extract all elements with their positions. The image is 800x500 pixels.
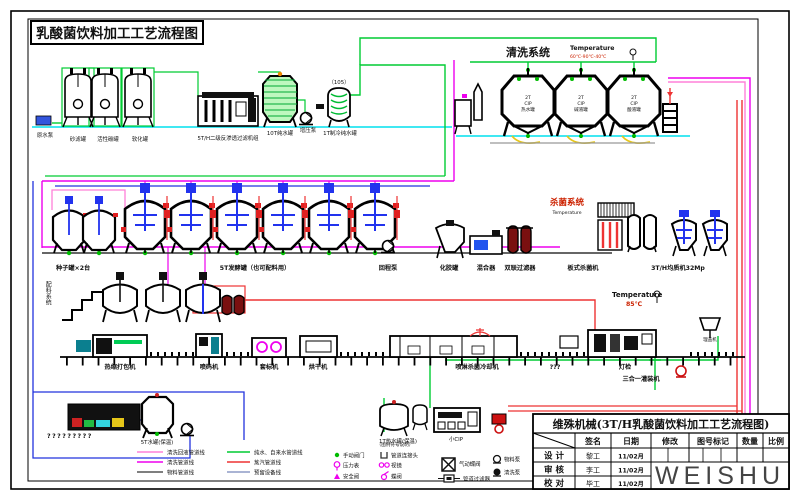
col-sign: 签名 (584, 436, 601, 446)
legend-symbol-0: 手动阀门 (343, 452, 365, 460)
pure-water-tank-10t (263, 72, 297, 127)
small-cip-unit (434, 408, 480, 432)
legend-label-clean-return: 清洗回液管道线 (167, 449, 205, 457)
row-design-date: 11/02月 (618, 453, 644, 461)
manual-valve-icon (335, 453, 339, 457)
sleeve-labeler-machine (252, 338, 286, 357)
titleblock-title: 维殊机械(3T/H乳酸菌饮料加工工艺流程图) (553, 417, 770, 431)
dryer-machine (300, 336, 337, 357)
legend-label-reserved: 预留设备线 (254, 469, 282, 477)
legend-symbol-9: 清洗泵 (504, 469, 521, 477)
svg-text:热水罐: 热水罐 (521, 106, 535, 113)
coder-label: 喷码机 (200, 363, 219, 371)
legend-label-steam: 蒸汽管道线 (254, 459, 282, 467)
title-box: 乳酸菌饮料加工工艺流程图 (31, 21, 203, 44)
row-proof-name: 毕工 (586, 479, 600, 488)
process-flow-drawing: 乳酸菌饮料加工工艺流程图 (0, 0, 800, 500)
light-check-label: 灯检 (619, 363, 632, 371)
svg-text:2T: 2T (578, 95, 584, 101)
row-proof-role: 校 对 (544, 478, 564, 489)
shrink-wrapper-label: 热缩打包机 (105, 363, 137, 371)
return-pump-label: 回程泵 (379, 264, 398, 272)
gel-tank-label: 化胶罐 (440, 264, 459, 272)
batching-label: 配料系统 (44, 281, 51, 305)
col-qty: 数量 (742, 436, 758, 446)
row-review-date: 11/02月 (618, 467, 644, 475)
mixer-label: 混合器 (477, 264, 496, 272)
homogenizer-label: 3T/H均质机32Mp (651, 264, 705, 272)
row-design-name: 黎工 (586, 452, 600, 461)
legend-note: （图例符号说明） (377, 441, 414, 448)
tag-105: （105） (328, 79, 349, 86)
small-cip-label: 小CIP (449, 435, 464, 443)
svg-text:碱液罐: 碱液罐 (574, 106, 588, 113)
chilled-water-tank-1t (328, 88, 350, 127)
svg-text:CIP: CIP (630, 101, 638, 107)
sterilize-temp-label: Temperature (551, 210, 581, 216)
cip-temperature-label: Temperature (570, 45, 615, 52)
col-dwg: 图号标记 (697, 436, 729, 446)
cap-sorter-label: 理盖机 (703, 336, 717, 343)
insulated-tank-label: 5T水罐(保温) (141, 438, 174, 446)
insulated-water-tank-5t (142, 393, 173, 438)
legend-label-clean: 清洗管道线 (167, 459, 195, 467)
svg-text:CIP: CIP (577, 101, 585, 107)
chilled-tank-label: 1T制冷纯水罐 (323, 129, 357, 137)
cip-temperature-value: 60℃-90℃-40℃ (570, 54, 606, 60)
svg-text:2T: 2T (631, 95, 637, 101)
crate-washer-machine (68, 404, 140, 430)
col-mod: 修改 (661, 436, 679, 446)
plate-sterilizer-label: 板式杀菌机 (568, 264, 600, 272)
svg-text:酸液罐: 酸液罐 (627, 106, 641, 113)
col-date: 日期 (623, 436, 639, 446)
filler-temp-value: 85℃ (626, 301, 643, 308)
legend-symbol-8: 物料泵 (504, 456, 521, 464)
cip-title: 清洗系统 (506, 45, 550, 59)
legend-symbol-7: 管道过滤器 (463, 475, 491, 483)
sand-filter-label: 砂滤罐 (70, 135, 87, 143)
legend-symbol-4: 视镜 (391, 462, 402, 470)
legend-symbol-6: 气动蝶阀 (459, 460, 481, 468)
inkjet-coder-machine (196, 334, 222, 357)
carbon-filter-label: 活性碳罐 (97, 135, 119, 143)
duplex-filter-label: 双联过滤器 (504, 264, 537, 272)
row-proof-date: 11/02月 (618, 480, 644, 488)
row-review-name: 李工 (586, 466, 600, 475)
sterilize-title: 杀菌系统 (550, 197, 585, 208)
legend-symbol-5: 蝶阀 (391, 473, 402, 481)
row-design-role: 设 计 (544, 451, 564, 462)
title-block: 维殊机械(3T/H乳酸菌饮料加工工艺流程图) 签名 日期 修改 图号标记 数量 … (533, 414, 789, 490)
row-review-role: 审 核 (544, 465, 564, 476)
legend-symbol-1: 压力表 (343, 462, 360, 470)
fermenters-label: 5T发酵罐（也可配料用） (220, 264, 290, 272)
legend-symbol-2: 安全阀 (343, 473, 359, 481)
filler-label: 三合一灌装机 (622, 375, 660, 383)
drawing-title: 乳酸菌饮料加工工艺流程图 (36, 25, 198, 42)
ro-unit-label: 5T/H二级反渗透过滤机组 (197, 134, 259, 142)
svg-text:2T: 2T (525, 95, 531, 101)
ro-unit (198, 92, 258, 126)
pneumatic-valve-icon (442, 458, 455, 471)
raw-water-pump-label: 原水泵 (37, 131, 54, 139)
bottom-qmarks: ????????? (47, 433, 93, 440)
sleever-label: 套标机 (259, 363, 279, 371)
filler-cip-pump (676, 366, 686, 377)
legend-symbol-3: 管道连接头 (391, 452, 419, 460)
legend-label-material: 物料管道线 (167, 469, 195, 477)
dryer-label: 烘干机 (309, 363, 328, 371)
booster-pump-label: 增压泵 (300, 126, 317, 134)
spray-cooler-label: 喷淋杀菌冷却机 (455, 363, 499, 371)
seed-tanks-label: 种子罐×2台 (55, 264, 90, 272)
pure-tank-label: 10T纯水罐 (267, 129, 294, 137)
softener-label: 软化罐 (132, 135, 149, 143)
raw-water-pump (36, 116, 51, 125)
unknown-label: ??? (550, 364, 561, 371)
col-scale: 比例 (768, 436, 784, 446)
svg-text:CIP: CIP (524, 101, 532, 107)
weishu-logo: WEISHU (655, 462, 785, 490)
legend-label-water: 纯水、自来水管道线 (254, 449, 303, 457)
